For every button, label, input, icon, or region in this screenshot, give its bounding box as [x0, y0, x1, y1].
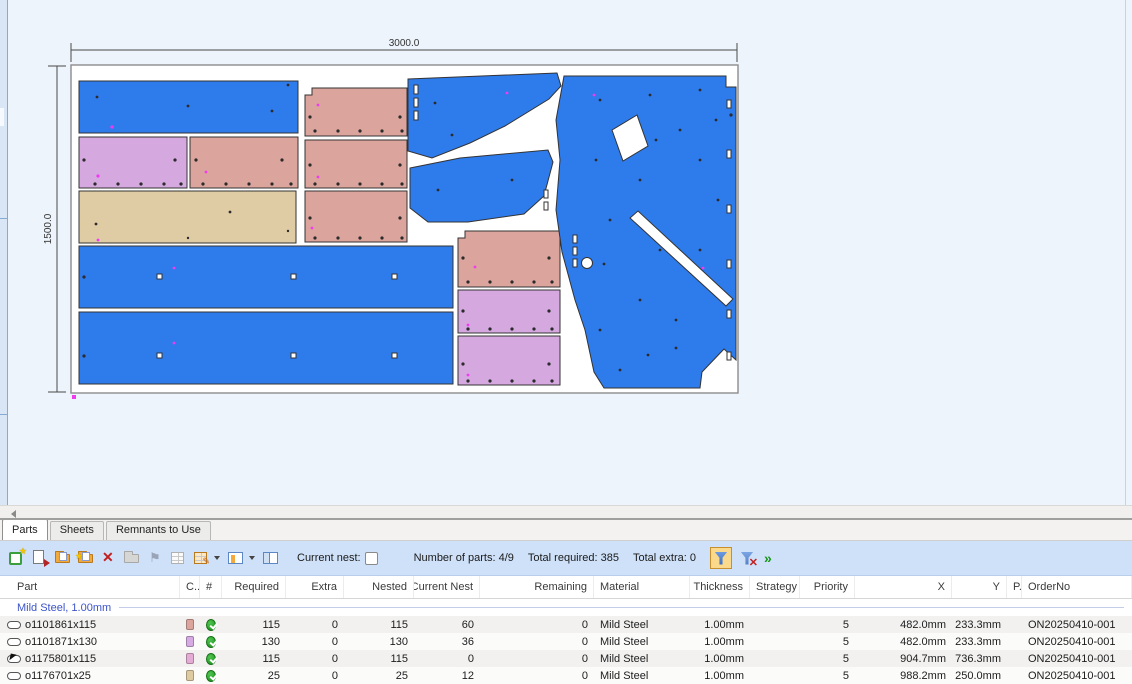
cell-y: 736.3mm — [952, 650, 1007, 667]
cell-priority: 5 — [800, 616, 855, 633]
color-swatch — [186, 619, 194, 630]
sheet-origin-marker — [72, 395, 76, 399]
cell-extra: 0 — [286, 633, 344, 650]
cell-y: 250.0mm — [952, 667, 1007, 684]
material-group-label: Mild Steel, 1.00mm — [17, 602, 111, 614]
table-row[interactable]: o1101871x130 130 0 130 36 0 Mild Steel 1… — [0, 633, 1132, 650]
col-header-part[interactable]: Part — [0, 576, 180, 598]
col-header-orderno[interactable]: OrderNo — [1022, 576, 1132, 598]
splitter-divider — [0, 414, 8, 415]
cell-required: 25 — [222, 667, 286, 684]
stat-total-extra: Total extra: 0 — [633, 552, 696, 564]
tab-remnants[interactable]: Remnants to Use — [106, 521, 211, 540]
cell-strategy — [750, 633, 800, 650]
col-header-y[interactable]: Y — [952, 576, 1007, 598]
status-check-icon — [206, 653, 216, 665]
color-swatch — [186, 636, 194, 647]
table-row[interactable]: o1101861x115 115 0 115 60 0 Mild Steel 1… — [0, 616, 1132, 633]
nest-drawing: 3000.0 1500.0 — [0, 0, 1132, 505]
cell-orderno: ON20250410-001 — [1022, 650, 1132, 667]
nested-part[interactable] — [458, 290, 560, 333]
part-icon — [7, 672, 21, 680]
pin-icon[interactable]: ⚑ — [146, 549, 164, 567]
part-icon — [7, 638, 21, 646]
part-cutout — [582, 258, 593, 269]
cell-material: Mild Steel — [594, 633, 690, 650]
cell-p — [1007, 667, 1022, 684]
cell-orderno: ON20250410-001 — [1022, 616, 1132, 633]
part-icon-edited — [7, 655, 21, 663]
grid-icon[interactable] — [169, 549, 187, 567]
copy-folder-icon[interactable]: ★ — [77, 549, 95, 567]
cell-strategy — [750, 616, 800, 633]
status-check-icon — [206, 619, 216, 631]
part-name: o1176701x25 — [25, 670, 91, 682]
col-header-remaining[interactable]: Remaining — [480, 576, 594, 598]
dim-height-label: 1500.0 — [43, 213, 54, 244]
cell-p — [1007, 650, 1022, 667]
part-name: o1175801x115 — [25, 653, 96, 665]
splitter-divider — [0, 218, 8, 219]
cell-x: 988.2mm — [855, 667, 952, 684]
filter-clear-icon[interactable]: ✕ — [736, 547, 758, 569]
material-group-row[interactable]: Mild Steel, 1.00mm — [0, 599, 1132, 616]
status-check-icon — [206, 636, 216, 648]
nested-part[interactable] — [458, 231, 560, 287]
delete-icon[interactable]: ✕ — [100, 549, 118, 567]
edit-columns-dropdown-icon[interactable] — [214, 556, 220, 560]
col-header-strategy[interactable]: Strategy — [750, 576, 800, 598]
cell-remaining: 0 — [480, 633, 594, 650]
scroll-left-icon[interactable] — [11, 510, 16, 518]
view-options-dropdown-icon[interactable] — [249, 556, 255, 560]
cell-thickness: 1.00mm — [690, 650, 750, 667]
cell-x: 482.0mm — [855, 616, 952, 633]
nested-part[interactable] — [190, 137, 298, 188]
cell-p — [1007, 633, 1022, 650]
cell-nested: 115 — [344, 650, 414, 667]
table-row[interactable]: o1176701x25 25 0 25 12 0 Mild Steel 1.00… — [0, 667, 1132, 684]
stat-number-of-parts: Number of parts: 4/9 — [414, 552, 514, 564]
cell-priority: 5 — [800, 650, 855, 667]
cell-x: 482.0mm — [855, 633, 952, 650]
more-chevrons-icon[interactable]: » — [764, 550, 771, 566]
nested-part[interactable] — [305, 191, 407, 242]
color-swatch — [186, 670, 194, 681]
part-name: o1101871x130 — [25, 636, 97, 648]
cell-thickness: 1.00mm — [690, 633, 750, 650]
col-header-priority[interactable]: Priority — [800, 576, 855, 598]
cell-current-nest: 36 — [414, 633, 480, 650]
cell-thickness: 1.00mm — [690, 616, 750, 633]
nested-part[interactable] — [305, 140, 407, 188]
open-folder-icon[interactable] — [54, 549, 72, 567]
cell-y: 233.3mm — [952, 616, 1007, 633]
group-rule — [119, 607, 1124, 608]
cell-current-nest: 12 — [414, 667, 480, 684]
edit-columns-icon[interactable] — [192, 549, 210, 567]
status-check-icon — [206, 670, 216, 682]
color-swatch — [186, 653, 194, 664]
split-view-icon[interactable] — [262, 549, 280, 567]
cell-current-nest: 0 — [414, 650, 480, 667]
current-nest-checkbox[interactable] — [365, 552, 378, 565]
col-header-nested[interactable]: Nested — [344, 576, 414, 598]
col-header-extra[interactable]: Extra — [286, 576, 344, 598]
cell-nested: 25 — [344, 667, 414, 684]
cell-remaining: 0 — [480, 650, 594, 667]
cell-required: 130 — [222, 633, 286, 650]
cell-orderno: ON20250410-001 — [1022, 633, 1132, 650]
cell-extra: 0 — [286, 650, 344, 667]
part-icon — [7, 621, 21, 629]
col-header-current-nest[interactable]: Current Nest — [414, 576, 480, 598]
cell-nested: 115 — [344, 616, 414, 633]
import-part-icon[interactable] — [31, 549, 49, 567]
cell-priority: 5 — [800, 667, 855, 684]
horizontal-scrollbar[interactable] — [0, 505, 1132, 520]
cell-priority: 5 — [800, 633, 855, 650]
filter-on-icon[interactable] — [710, 547, 732, 569]
cell-extra: 0 — [286, 667, 344, 684]
col-header-material[interactable]: Material — [594, 576, 690, 598]
col-header-thickness[interactable]: Thickness — [690, 576, 750, 598]
canvas-edge-line — [1125, 0, 1126, 505]
nested-part[interactable] — [79, 312, 453, 384]
nested-part[interactable] — [79, 191, 296, 243]
part-name: o1101861x115 — [25, 619, 96, 631]
col-header-p[interactable]: P... — [1007, 576, 1022, 598]
nest-canvas[interactable]: 3000.0 1500.0 — [0, 0, 1132, 505]
stat-total-required: Total required: 385 — [528, 552, 619, 564]
col-header-color[interactable]: C... — [180, 576, 200, 598]
cell-required: 115 — [222, 650, 286, 667]
current-nest-label: Current nest: — [297, 552, 361, 564]
tab-parts[interactable]: Parts — [2, 519, 48, 540]
cell-current-nest: 60 — [414, 616, 480, 633]
cell-remaining: 0 — [480, 616, 594, 633]
cell-material: Mild Steel — [594, 667, 690, 684]
cell-p — [1007, 616, 1022, 633]
view-options-icon[interactable] — [227, 549, 245, 567]
nested-parts[interactable] — [79, 73, 736, 388]
cell-required: 115 — [222, 616, 286, 633]
parts-table-header: Part C... # Required Extra Nested Curren… — [0, 576, 1132, 599]
table-row[interactable]: o1175801x115 115 0 115 0 0 Mild Steel 1.… — [0, 650, 1132, 667]
cell-nested: 130 — [344, 633, 414, 650]
left-panel-splitter[interactable] — [0, 0, 8, 505]
parts-toolbar: ★ ★ ✕ ⚑ Current nest: Number of parts: 4… — [0, 541, 1132, 576]
nested-part[interactable] — [458, 336, 560, 385]
new-part-icon[interactable]: ★ — [8, 549, 26, 567]
col-header-required[interactable]: Required — [222, 576, 286, 598]
splitter-handle[interactable] — [0, 108, 4, 126]
cell-x: 904.7mm — [855, 650, 952, 667]
cell-extra: 0 — [286, 616, 344, 633]
cell-material: Mild Steel — [594, 616, 690, 633]
tab-sheets[interactable]: Sheets — [50, 521, 104, 540]
cell-y: 233.3mm — [952, 633, 1007, 650]
col-header-status[interactable]: # — [200, 576, 222, 598]
nested-part[interactable] — [79, 137, 187, 188]
cell-orderno: ON20250410-001 — [1022, 667, 1132, 684]
bottom-panel-tabs: Parts Sheets Remnants to Use — [0, 520, 1132, 541]
cell-remaining: 0 — [480, 667, 594, 684]
cell-strategy — [750, 667, 800, 684]
dim-width-label: 3000.0 — [389, 38, 420, 49]
col-header-x[interactable]: X — [855, 576, 952, 598]
cell-strategy — [750, 650, 800, 667]
open-folder-disabled-icon[interactable] — [123, 549, 141, 567]
nested-part[interactable] — [305, 88, 407, 136]
cell-material: Mild Steel — [594, 650, 690, 667]
cell-thickness: 1.00mm — [690, 667, 750, 684]
